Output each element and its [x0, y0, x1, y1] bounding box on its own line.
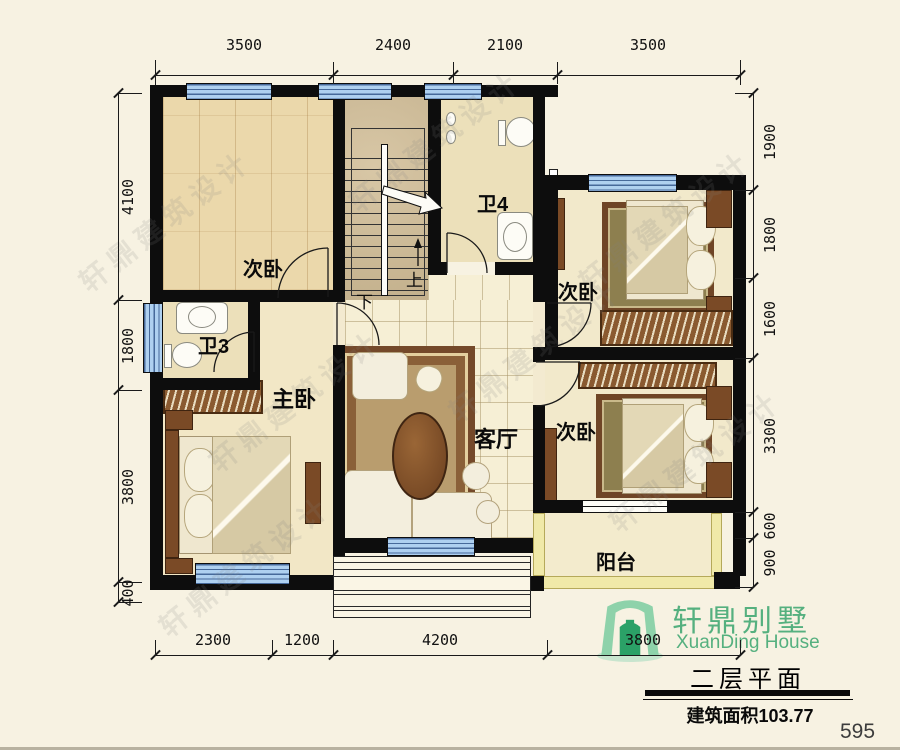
- dim-right-4: 3300: [761, 413, 779, 459]
- label-stair-down: 下: [356, 288, 373, 313]
- title-underline-thick: [645, 690, 850, 696]
- window: [318, 83, 392, 100]
- dim-left-3: 3800: [119, 464, 137, 510]
- dim-left-1: 4100: [119, 174, 137, 220]
- wall: [533, 405, 545, 515]
- dim-line-bottom: [155, 655, 741, 656]
- wall: [248, 302, 260, 378]
- balcony-parapet: [533, 513, 545, 576]
- ottoman: [462, 462, 490, 490]
- wall: [428, 262, 447, 275]
- dim-top-3: 2100: [475, 36, 535, 54]
- dim-right-2: 1800: [761, 212, 779, 258]
- balcony-parapet: [711, 513, 722, 576]
- canopy: [333, 556, 531, 618]
- dim-top-4: 3500: [618, 36, 678, 54]
- dim-bottom-1: 2300: [183, 631, 243, 649]
- window: [186, 83, 272, 100]
- balcony-parapet: [543, 576, 717, 589]
- xuanding-logo-icon: [593, 590, 667, 664]
- dim-top-2: 2400: [363, 36, 423, 54]
- canopy-line: [333, 576, 531, 577]
- label-bedroom-top-left: 次卧: [243, 253, 283, 282]
- toilet-tank: [164, 344, 172, 368]
- canopy-line: [333, 606, 531, 607]
- canopy-line: [333, 590, 531, 591]
- label-bedroom-right-lower: 次卧: [556, 416, 596, 445]
- wall: [495, 262, 545, 275]
- coffee-table: [392, 412, 448, 500]
- sink-basin: [188, 306, 216, 328]
- canopy-line: [333, 562, 531, 563]
- canopy-line: [333, 594, 531, 595]
- label-balcony: 阳台: [596, 546, 636, 575]
- wall: [531, 576, 544, 591]
- page-number: 595: [840, 720, 892, 744]
- wardrobe: [578, 362, 717, 389]
- dim-right-1: 1900: [761, 119, 779, 165]
- wall: [150, 290, 345, 302]
- dim-line-top: [155, 75, 741, 76]
- wall: [545, 347, 733, 360]
- dim-bottom-4: 3800: [613, 631, 673, 649]
- window: [387, 537, 475, 556]
- dim-right-6: 900: [761, 540, 779, 586]
- canopy-line: [333, 610, 531, 611]
- label-bathroom-3: 卫3: [198, 330, 229, 359]
- toilet-bowl: [506, 117, 536, 147]
- window: [588, 174, 677, 192]
- nightstand: [165, 410, 193, 430]
- area-text: 建筑面积103.77: [650, 702, 850, 728]
- plan-title: 二层平面: [648, 659, 848, 694]
- dim-bottom-2: 1200: [272, 631, 332, 649]
- dim-left-4: 400: [119, 570, 137, 616]
- label-living-room: 客厅: [474, 422, 518, 454]
- dim-bottom-3: 4200: [410, 631, 470, 649]
- label-bedroom-right-upper: 次卧: [558, 276, 598, 305]
- wall: [733, 175, 746, 515]
- floor-hallway: [428, 275, 533, 302]
- title-underline-thin: [643, 699, 853, 700]
- wardrobe: [600, 310, 733, 346]
- wall: [333, 290, 345, 302]
- sink-basin: [503, 222, 527, 252]
- nightstand: [165, 558, 193, 574]
- dim-right-3: 1600: [761, 296, 779, 342]
- pillow: [686, 250, 716, 290]
- wall: [163, 378, 260, 390]
- canopy-line: [333, 569, 531, 570]
- toilet-tank: [498, 120, 506, 146]
- dim-top-1: 3500: [214, 36, 274, 54]
- wall: [533, 500, 583, 513]
- window: [143, 303, 163, 373]
- brand-name-en: XuanDing House: [676, 632, 856, 654]
- ottoman: [476, 500, 500, 524]
- stair-rail: [381, 144, 388, 296]
- dim-left-2: 1800: [119, 323, 137, 369]
- label-bathroom-4: 卫4: [477, 188, 508, 217]
- wall: [345, 538, 387, 553]
- label-master-bedroom: 主卧: [272, 382, 316, 414]
- bed-headboard: [165, 430, 179, 558]
- floor-plan-sheet: 次卧 卫4 次卧 卫3 主卧 客厅 次卧 阳台 上 下 轩鼎建筑设计 轩鼎建筑设…: [0, 0, 900, 750]
- wall: [473, 538, 533, 553]
- label-stair-up: 上: [406, 266, 423, 291]
